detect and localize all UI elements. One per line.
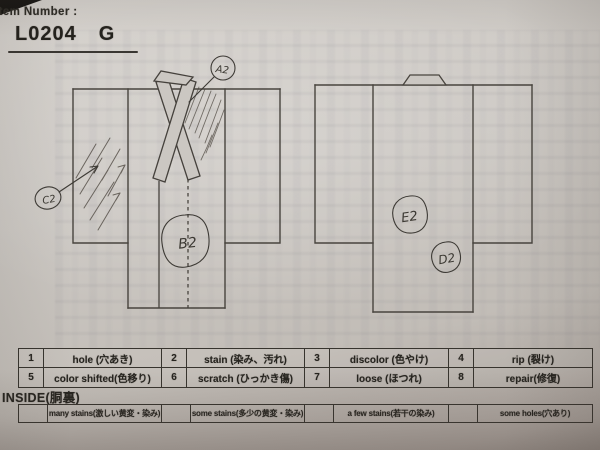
defect-code: 6: [162, 368, 187, 387]
item-number: L0204G: [15, 23, 115, 46]
kimono-back-diagram: E2 D2: [300, 50, 550, 320]
item-number-label: Item Number :: [0, 6, 78, 18]
front-annotations: [33, 56, 235, 267]
defect-code: 1: [19, 349, 44, 368]
defect-label: repair(修復): [474, 368, 592, 387]
defect-code: 4: [449, 349, 474, 368]
annotation-e2-label: E2: [400, 209, 418, 226]
back-neckband: [403, 75, 446, 85]
inside-condition-table: many stains(激しい黄変・染み) some stains(多少の黄変・…: [18, 404, 593, 423]
defect-code: 2: [162, 349, 187, 368]
annotation-c2-arrow: [59, 166, 98, 192]
inside-checkbox-cell: [19, 405, 48, 422]
kimono-front-diagram: A2 C2 B2: [20, 50, 300, 320]
defect-label: rip (裂け): [474, 349, 592, 368]
annotation-c2-label: C2: [42, 194, 57, 207]
kimono-inspection-sheet: Item Number : L0204G: [0, 0, 600, 450]
defect-label: discolor (色やけ): [330, 349, 449, 368]
defect-label: scratch (ひっかき傷): [187, 368, 305, 387]
annotation-a2-label: A2: [214, 64, 230, 77]
item-number-value: L0204: [15, 23, 77, 45]
defect-code: 3: [305, 349, 330, 368]
defect-label: loose (ほつれ): [330, 368, 449, 387]
inside-checkbox-cell: [305, 405, 334, 422]
defect-code-table: 1 hole (穴あき) 2 stain (染み、汚れ) 3 discolor …: [18, 348, 593, 388]
defect-label: hole (穴あき): [44, 349, 162, 368]
inside-option-label: some holes(穴あり): [478, 405, 592, 422]
back-outline: [315, 85, 532, 312]
defect-code: 8: [449, 368, 474, 387]
annotation-d2-label: D2: [437, 251, 456, 268]
annotation-b2-label: B2: [178, 235, 198, 253]
inside-checkbox-cell: [449, 405, 478, 422]
inside-option-label: many stains(激しい黄変・染み): [48, 405, 162, 422]
collar-bands: [153, 71, 200, 182]
inside-option-label: some stains(多少の黄変・染み): [191, 405, 305, 422]
defect-label: color shifted(色移り): [44, 368, 162, 387]
defect-code: 7: [305, 368, 330, 387]
sleeve-hatching: [76, 138, 125, 230]
inside-checkbox-cell: [162, 405, 191, 422]
defect-code: 5: [19, 368, 44, 387]
inside-option-label: a few stains(若干の染み): [334, 405, 449, 422]
item-number-grade: G: [99, 23, 116, 45]
defect-label: stain (染み、汚れ): [187, 349, 305, 368]
